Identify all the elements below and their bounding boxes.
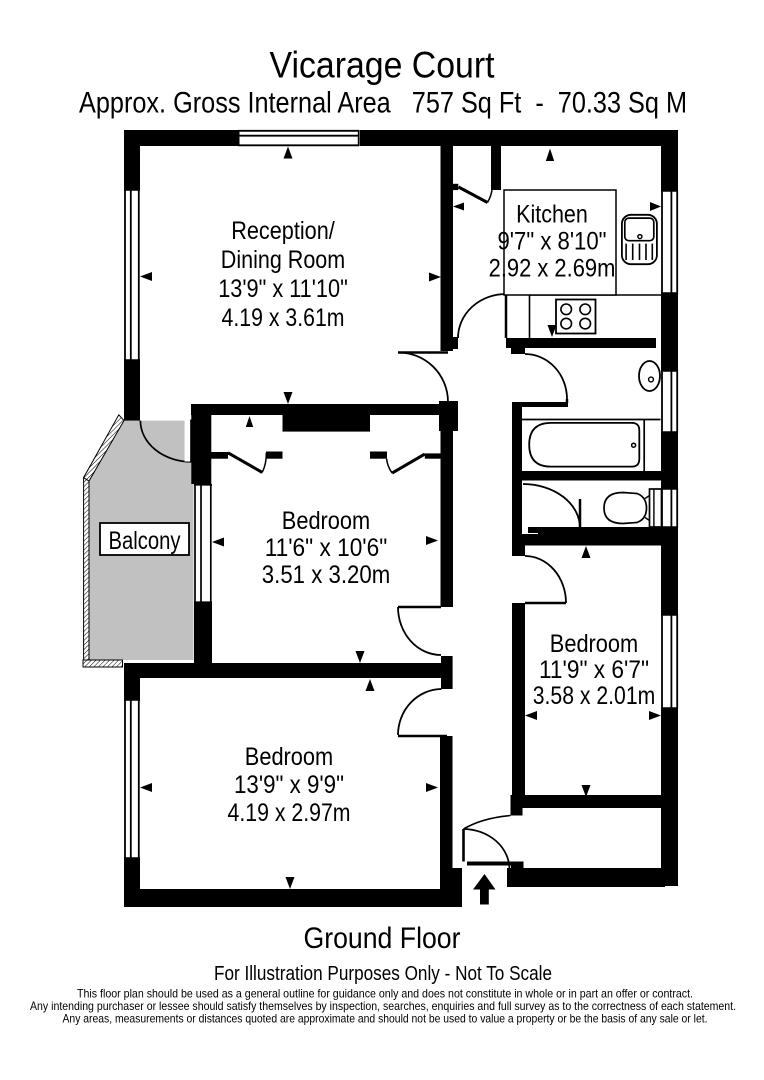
svg-text:Reception/: Reception/ [231, 217, 335, 245]
svg-text:Approx. Gross Internal Area: Approx. Gross Internal Area 757 Sq Ft - … [79, 87, 687, 120]
svg-text:Bedroom: Bedroom [245, 743, 333, 771]
svg-text:4.19 x 2.97m: 4.19 x 2.97m [228, 799, 351, 827]
svg-text:Bedroom: Bedroom [550, 630, 638, 658]
svg-text:Dining Room: Dining Room [221, 246, 345, 274]
svg-text:3.58 x 2.01m: 3.58 x 2.01m [533, 682, 656, 710]
svg-text:4.19 x 3.61m: 4.19 x 3.61m [222, 304, 345, 332]
svg-text:11'6" x 10'6": 11'6" x 10'6" [265, 534, 388, 562]
svg-text:9'7" x 8'10": 9'7" x 8'10" [498, 228, 607, 256]
svg-text:Balcony: Balcony [109, 527, 181, 555]
svg-text:Any areas, measurements or dis: Any areas, measurements or distances quo… [63, 1011, 708, 1025]
svg-text:3.51 x 3.20m: 3.51 x 3.20m [262, 561, 390, 589]
svg-text:For Illustration Purposes Only: For Illustration Purposes Only - Not To … [214, 963, 552, 985]
svg-text:Ground Floor: Ground Floor [304, 922, 461, 955]
svg-text:Vicarage Court: Vicarage Court [270, 45, 496, 86]
svg-text:2.92 x 2.69m: 2.92 x 2.69m [489, 255, 616, 283]
svg-text:Bedroom: Bedroom [282, 507, 370, 535]
svg-text:13'9" x 11'10": 13'9" x 11'10" [218, 275, 348, 303]
svg-text:13'9" x 9'9": 13'9" x 9'9" [234, 771, 344, 799]
svg-text:11'9" x 6'7": 11'9" x 6'7" [539, 656, 649, 684]
svg-text:Kitchen: Kitchen [516, 201, 588, 229]
